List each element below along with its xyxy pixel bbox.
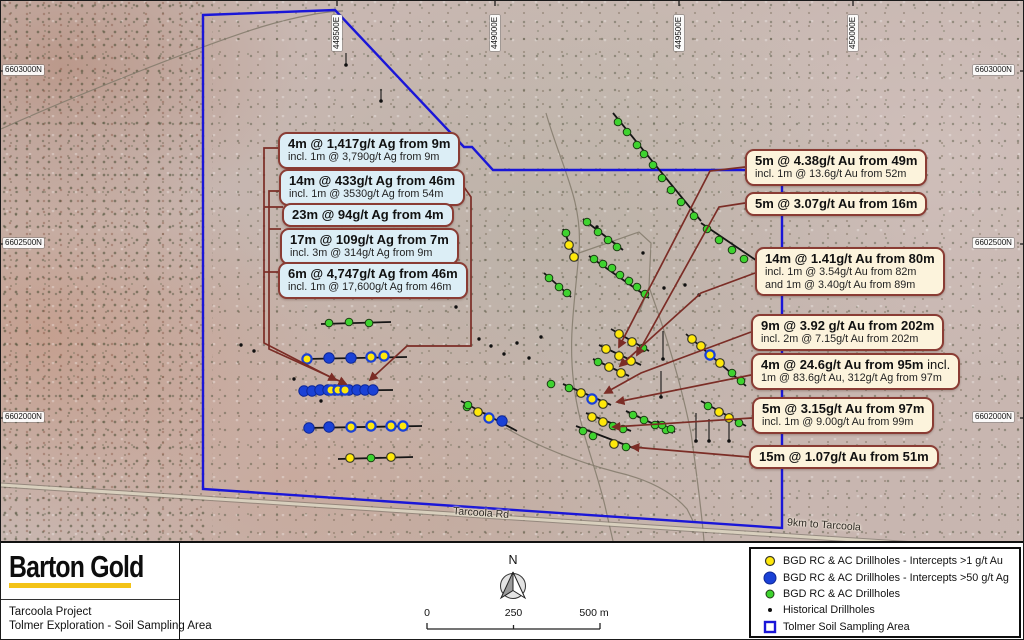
bgd-drillhole-marker bbox=[583, 218, 591, 226]
bgd-drillhole-marker bbox=[464, 401, 472, 409]
grid-coordinate-label: 449500E bbox=[674, 15, 684, 51]
intercept-sub: incl. 1m @ 3,790g/t Ag from 9m bbox=[288, 151, 450, 164]
bgd-drillhole-marker bbox=[614, 118, 622, 126]
historical-drillhole-marker bbox=[694, 439, 698, 443]
bgd-drillhole-marker bbox=[616, 271, 624, 279]
au-intercept-drillhole-marker bbox=[599, 400, 608, 409]
bgd-drillhole-marker bbox=[625, 277, 633, 285]
intercept-title: 9m @ 3.92 g/t Au from 202m bbox=[761, 318, 934, 333]
historical-drillhole-marker bbox=[489, 344, 492, 347]
intercept-sub: incl. 1m @ 9.00g/t Au from 99m bbox=[762, 416, 924, 429]
scale-label-end: 500 m bbox=[579, 607, 608, 619]
intercept-sub: 1m @ 83.6g/t Au, 312g/t Ag from 97m bbox=[761, 372, 950, 385]
bgd-drillhole-marker bbox=[622, 443, 630, 451]
au-intercept-drillhole-marker bbox=[688, 335, 697, 344]
north-scale-group: N 0 250 500 m bbox=[401, 548, 621, 640]
ag-intercept-drillhole-marker bbox=[324, 353, 334, 363]
bgd-drillhole-marker bbox=[667, 425, 675, 433]
bgd-drillhole-marker bbox=[623, 128, 631, 136]
dirt-track bbox=[546, 113, 613, 541]
legend-label: Historical Drillholes bbox=[783, 604, 875, 616]
historical-drillhole-marker bbox=[379, 99, 383, 103]
au-intercept-drillhole-marker bbox=[716, 359, 725, 368]
bgd-drillhole-marker bbox=[715, 236, 723, 244]
bgd-drillhole-marker bbox=[594, 358, 602, 366]
intercept-title: 6m @ 4,747g/t Ag from 46m bbox=[288, 266, 458, 281]
legend-label: BGD RC & AC Drillholes - Intercepts >50 … bbox=[783, 572, 1009, 584]
au-ag-intercept-drillhole-marker bbox=[386, 421, 395, 430]
grid-coordinate-label: 450000E bbox=[848, 15, 858, 51]
blue-square-icon bbox=[757, 620, 783, 634]
au-intercept-drillhole-marker bbox=[602, 345, 611, 354]
historical-drillhole-marker bbox=[683, 283, 686, 286]
intercept-title: 4m @ 24.6g/t Au from 95m incl. bbox=[761, 357, 950, 372]
bgd-drillhole-marker bbox=[740, 255, 748, 263]
bgd-drillhole-marker bbox=[594, 228, 602, 236]
bgd-drillhole-marker bbox=[735, 419, 743, 427]
au-intercept-drillhole-marker bbox=[577, 389, 586, 398]
legend-item-bgd-drillholes: BGD RC & AC Drillholes bbox=[757, 586, 1013, 602]
map-caption: Tarcoola Project Tolmer Exploration - So… bbox=[9, 605, 212, 633]
bgd-drillhole-marker bbox=[565, 384, 573, 392]
bgd-drillhole-marker bbox=[667, 186, 675, 194]
bgd-drillhole-marker bbox=[367, 454, 375, 462]
grid-coordinate-label: 6602500N bbox=[973, 238, 1014, 248]
bgd-drillhole-marker bbox=[563, 289, 571, 297]
intercept-sub: incl. 1m @ 3530g/t Ag from 54m bbox=[289, 188, 455, 201]
scale-label-start: 0 bbox=[424, 607, 430, 619]
historical-drillhole-marker bbox=[292, 377, 295, 380]
map-area: Tarcoola Rd 9km to Tarcoola 4m @ 1,417g/… bbox=[1, 1, 1024, 541]
bgd-drillhole-marker bbox=[704, 402, 712, 410]
au-ag-intercept-drillhole-marker bbox=[587, 394, 596, 403]
north-arrow-icon bbox=[501, 572, 526, 599]
historical-drillhole-marker bbox=[659, 395, 663, 399]
grid-coordinate-label: 6603000N bbox=[3, 65, 44, 75]
bgd-drillhole-marker bbox=[629, 411, 637, 419]
intercept-title: 23m @ 94g/t Ag from 4m bbox=[292, 207, 444, 222]
au-intercept-drillhole-marker bbox=[615, 352, 624, 361]
bgd-drillhole-marker bbox=[658, 174, 666, 182]
ag-intercept-drillhole-marker bbox=[346, 353, 356, 363]
bgd-drillhole-marker bbox=[325, 319, 333, 327]
historical-drillhole-marker bbox=[252, 349, 255, 352]
au-intercept-drillhole-marker bbox=[599, 418, 608, 427]
bgd-drillhole-marker bbox=[365, 319, 373, 327]
black-dot-icon bbox=[757, 606, 783, 614]
historical-drillhole-marker bbox=[539, 335, 542, 338]
intercept-sub2: and 1m @ 3.40g/t Au from 89m bbox=[765, 279, 935, 292]
intercept-sub: incl. 1m @ 13.6g/t Au from 52m bbox=[755, 168, 917, 181]
footer-panel: Barton Gold Tarcoola Project Tolmer Expl… bbox=[1, 541, 1024, 640]
intercept-title: 14m @ 433g/t Ag from 46m bbox=[289, 173, 455, 188]
callout-silver-5: 6m @ 4,747g/t Ag from 46m incl. 1m @ 17,… bbox=[278, 262, 468, 299]
callout-silver-4: 17m @ 109g/t Ag from 7m incl. 3m @ 314g/… bbox=[280, 228, 459, 265]
au-intercept-drillhole-marker bbox=[617, 369, 626, 378]
historical-drillhole-marker bbox=[515, 341, 518, 344]
grid-coordinate-label: 6602000N bbox=[3, 412, 44, 422]
au-ag-intercept-drillhole-marker bbox=[705, 350, 714, 359]
bgd-drillhole-marker bbox=[590, 255, 598, 263]
historical-drillhole-marker bbox=[502, 352, 505, 355]
au-ag-intercept-drillhole-marker bbox=[379, 351, 388, 360]
au-ag-intercept-drillhole-marker bbox=[398, 421, 407, 430]
au-intercept-drillhole-marker bbox=[628, 338, 637, 347]
callout-leader-line bbox=[619, 167, 745, 347]
bgd-drillhole-marker bbox=[599, 260, 607, 268]
historical-drillhole-marker bbox=[727, 439, 731, 443]
logo-underline bbox=[9, 583, 131, 588]
bgd-drillhole-marker bbox=[579, 427, 587, 435]
intercept-title: 15m @ 1.07g/t Au from 51m bbox=[759, 449, 929, 464]
logo-divider bbox=[1, 599, 179, 600]
callout-gold-5: 4m @ 24.6g/t Au from 95m incl. 1m @ 83.6… bbox=[751, 353, 960, 390]
bgd-drillhole-marker bbox=[728, 246, 736, 254]
grid-coordinate-label: 6603000N bbox=[973, 65, 1014, 75]
callout-leader-line bbox=[617, 375, 751, 402]
intercept-sub: incl. 1m @ 17,600g/t Ag from 46m bbox=[288, 281, 458, 294]
tarcoola-road bbox=[1, 485, 1024, 541]
au-intercept-drillhole-marker bbox=[588, 413, 597, 422]
callout-gold-6: 5m @ 3.15g/t Au from 97m incl. 1m @ 9.00… bbox=[752, 397, 934, 434]
intercept-sub: incl. 1m @ 3.54g/t Au from 82m bbox=[765, 266, 935, 279]
historical-drillhole-marker bbox=[319, 399, 322, 402]
historical-drillhole-marker bbox=[641, 251, 644, 254]
legend-item-historical-drillholes: Historical Drillholes bbox=[757, 602, 1013, 618]
au-ag-intercept-drillhole-marker bbox=[366, 352, 375, 361]
au-intercept-drillhole-marker bbox=[610, 440, 619, 449]
bgd-drillhole-marker bbox=[604, 236, 612, 244]
legend-box: BGD RC & AC Drillholes - Intercepts >1 g… bbox=[749, 547, 1021, 638]
historical-drillhole-marker bbox=[344, 63, 348, 67]
intercept-title: 5m @ 3.07g/t Au from 16m bbox=[755, 196, 917, 211]
au-intercept-drillhole-marker bbox=[346, 454, 355, 463]
intercept-sub: incl. 2m @ 7.15g/t Au from 202m bbox=[761, 333, 934, 346]
dirt-track bbox=[506, 428, 693, 521]
callout-silver-1: 4m @ 1,417g/t Ag from 9m incl. 1m @ 3,79… bbox=[278, 132, 460, 169]
au-ag-intercept-drillhole-marker bbox=[484, 413, 493, 422]
bgd-drillhole-marker bbox=[728, 369, 736, 377]
bgd-drillhole-marker bbox=[658, 421, 666, 429]
au-intercept-drillhole-marker bbox=[725, 414, 734, 423]
callout-gold-3: 14m @ 1.41g/t Au from 80m incl. 1m @ 3.5… bbox=[755, 247, 945, 296]
map-figure: Tarcoola Rd 9km to Tarcoola 4m @ 1,417g/… bbox=[0, 0, 1024, 640]
legend-label: BGD RC & AC Drillholes - Intercepts >1 g… bbox=[783, 555, 1003, 567]
bgd-drillhole-marker bbox=[555, 283, 563, 291]
intercept-sub: incl. 3m @ 314g/t Ag from 9m bbox=[290, 247, 449, 260]
grid-coordinate-label: 6602500N bbox=[3, 238, 44, 248]
au-intercept-drillhole-marker bbox=[570, 253, 579, 262]
blue-dot-icon bbox=[757, 570, 783, 586]
historical-drillhole-marker bbox=[707, 439, 711, 443]
bgd-drillhole-marker bbox=[640, 416, 648, 424]
historical-drillhole-marker bbox=[527, 356, 530, 359]
ag-intercept-drillhole-marker bbox=[304, 423, 314, 433]
scale-label-mid: 250 bbox=[505, 607, 523, 619]
bgd-drillhole-marker bbox=[562, 229, 570, 237]
dirt-track bbox=[1, 11, 343, 129]
historical-drillhole-marker bbox=[454, 305, 457, 308]
historical-drillhole-marker bbox=[662, 286, 665, 289]
au-ag-intercept-drillhole-marker bbox=[346, 422, 355, 431]
historical-drillhole-marker bbox=[239, 343, 242, 346]
callout-gold-7: 15m @ 1.07g/t Au from 51m bbox=[749, 445, 939, 469]
au-intercept-drillhole-marker bbox=[387, 453, 396, 462]
intercept-title: 4m @ 1,417g/t Ag from 9m bbox=[288, 136, 450, 151]
intercept-title: 17m @ 109g/t Ag from 7m bbox=[290, 232, 449, 247]
grid-coordinate-label: 449000E bbox=[490, 15, 500, 51]
au-intercept-drillhole-marker bbox=[474, 408, 483, 417]
intercept-title: 14m @ 1.41g/t Au from 80m bbox=[765, 251, 935, 266]
au-intercept-drillhole-marker bbox=[565, 241, 574, 250]
bgd-drillhole-marker bbox=[545, 274, 553, 282]
au-ag-intercept-drillhole-marker bbox=[366, 421, 375, 430]
historical-drillhole-marker bbox=[477, 337, 480, 340]
au-intercept-drillhole-marker bbox=[605, 363, 614, 372]
project-name: Tarcoola Project bbox=[9, 605, 212, 619]
map-title: Tolmer Exploration - Soil Sampling Area bbox=[9, 619, 212, 633]
grid-coordinate-label: 6602000N bbox=[973, 412, 1014, 422]
bgd-drillhole-marker bbox=[640, 150, 648, 158]
intercept-title: 5m @ 3.15g/t Au from 97m bbox=[762, 401, 924, 416]
bgd-drillhole-marker bbox=[589, 432, 597, 440]
ag-intercept-drillhole-marker bbox=[368, 385, 378, 395]
legend-item-ag-intercepts: BGD RC & AC Drillholes - Intercepts >50 … bbox=[757, 569, 1013, 585]
legend-label: BGD RC & AC Drillholes bbox=[783, 588, 900, 600]
bgd-drillhole-marker bbox=[649, 161, 657, 169]
historical-drillhole-marker bbox=[661, 357, 665, 361]
legend-label: Tolmer Soil Sampling Area bbox=[783, 621, 910, 633]
yellow-dot-icon bbox=[757, 554, 783, 568]
green-dot-icon bbox=[757, 588, 783, 600]
bgd-drillhole-marker bbox=[608, 264, 616, 272]
ag-intercept-drillhole-marker bbox=[324, 422, 334, 432]
ag-intercept-drillhole-marker bbox=[497, 416, 507, 426]
au-ag-intercept-drillhole-marker bbox=[340, 385, 349, 394]
company-logo: Barton Gold bbox=[9, 549, 143, 585]
callout-gold-2: 5m @ 3.07g/t Au from 16m bbox=[745, 192, 927, 216]
scale-bar: 0 250 500 m bbox=[424, 607, 609, 629]
au-ag-intercept-drillhole-marker bbox=[302, 354, 311, 363]
intercept-title: 5m @ 4.38g/t Au from 49m bbox=[755, 153, 917, 168]
bgd-drillhole-marker bbox=[345, 318, 353, 326]
callout-gold-1: 5m @ 4.38g/t Au from 49m incl. 1m @ 13.6… bbox=[745, 149, 927, 186]
callout-silver-2: 14m @ 433g/t Ag from 46m incl. 1m @ 3530… bbox=[279, 169, 465, 206]
legend-item-au-intercepts: BGD RC & AC Drillholes - Intercepts >1 g… bbox=[757, 553, 1013, 569]
bgd-drillhole-marker bbox=[633, 141, 641, 149]
north-label: N bbox=[508, 553, 517, 567]
bgd-drillhole-marker bbox=[677, 198, 685, 206]
callout-gold-4: 9m @ 3.92 g/t Au from 202m incl. 2m @ 7.… bbox=[751, 314, 944, 351]
bgd-drillhole-marker bbox=[547, 380, 555, 388]
bgd-drillhole-marker bbox=[633, 283, 641, 291]
au-intercept-drillhole-marker bbox=[615, 330, 624, 339]
callout-leader-line bbox=[637, 203, 745, 355]
bgd-drillhole-marker bbox=[613, 243, 621, 251]
callout-leader-line bbox=[632, 447, 749, 457]
callout-silver-3: 23m @ 94g/t Ag from 4m bbox=[282, 203, 454, 227]
callout-leader-line bbox=[613, 418, 752, 427]
grid-coordinate-label: 448500E bbox=[332, 15, 342, 51]
au-intercept-drillhole-marker bbox=[715, 408, 724, 417]
legend-item-soil-sampling-area: Tolmer Soil Sampling Area bbox=[757, 619, 1013, 635]
bgd-drillhole-marker bbox=[690, 212, 698, 220]
